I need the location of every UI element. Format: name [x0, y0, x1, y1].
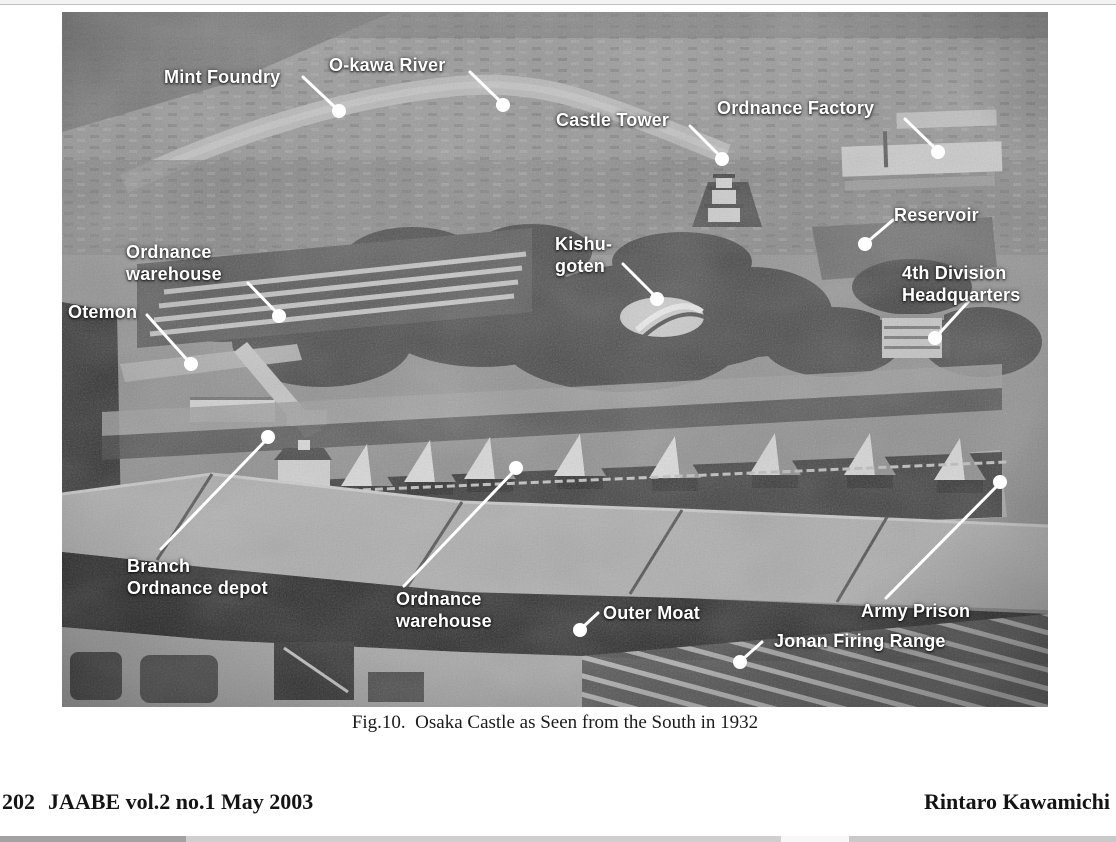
bottom-separator-segment [186, 836, 781, 842]
photo-label-fourth-division-hq: 4th Division Headquarters [902, 262, 1020, 306]
leader-fourth-division-hq [930, 302, 969, 344]
page-footer: 202 JAABE vol.2 no.1 May 2003 Rintaro Ka… [0, 789, 1116, 819]
leader-outer-moat [575, 613, 599, 636]
leader-otemon [147, 315, 197, 370]
footer-journal-info: JAABE vol.2 no.1 May 2003 [48, 789, 313, 815]
photo-label-otemon: Otemon [68, 301, 137, 323]
photo-label-jonan-firing-range: Jonan Firing Range [774, 630, 946, 652]
journal-page: Mint Foundry O-kawa River Castle Tower O… [0, 0, 1116, 842]
photo-label-army-prison: Army Prison [861, 600, 970, 622]
figure-caption: Fig.10. Osaka Castle as Seen from the So… [62, 712, 1048, 734]
leader-ordnance-warehouse-north [248, 283, 285, 322]
footer-page-number: 202 [2, 789, 35, 815]
photo-label-mint-foundry: Mint Foundry [164, 66, 280, 88]
bottom-separator-gap [781, 836, 849, 842]
leader-kishu-goten [623, 264, 663, 305]
photo-label-ordnance-factory: Ordnance Factory [717, 97, 874, 119]
photo-label-reservoir: Reservoir [894, 204, 979, 226]
photo-label-kishu-goten: Kishu- goten [555, 233, 612, 277]
page-top-separator [0, 0, 1116, 5]
leader-army-prison [886, 477, 1006, 599]
leader-castle-tower [690, 126, 728, 165]
bottom-separator-segment [849, 836, 1116, 842]
leader-ordnance-warehouse-south [404, 463, 522, 587]
photo-label-castle-tower: Castle Tower [556, 109, 669, 131]
leader-ordnance-factory [905, 119, 944, 158]
photo-label-ordnance-warehouse-north: Ordnance warehouse [126, 241, 222, 285]
leader-reservoir [860, 220, 894, 250]
leader-okawa-river [470, 72, 509, 111]
leader-branch-ordnance-depot [161, 432, 274, 550]
bottom-separator-segment [0, 836, 186, 842]
footer-author-name: Rintaro Kawamichi [924, 789, 1110, 815]
photo-label-ordnance-warehouse-south: Ordnance warehouse [396, 588, 492, 632]
leader-mint-foundry [303, 77, 345, 117]
photo-label-okawa-river: O-kawa River [329, 54, 445, 76]
page-bottom-separator [0, 836, 1116, 842]
figure-aerial-photo: Mint Foundry O-kawa River Castle Tower O… [62, 12, 1048, 707]
photo-label-branch-ordnance-depot: Branch Ordnance depot [127, 555, 268, 599]
photo-label-outer-moat: Outer Moat [603, 602, 700, 624]
leader-jonan-firing-range [735, 642, 763, 668]
